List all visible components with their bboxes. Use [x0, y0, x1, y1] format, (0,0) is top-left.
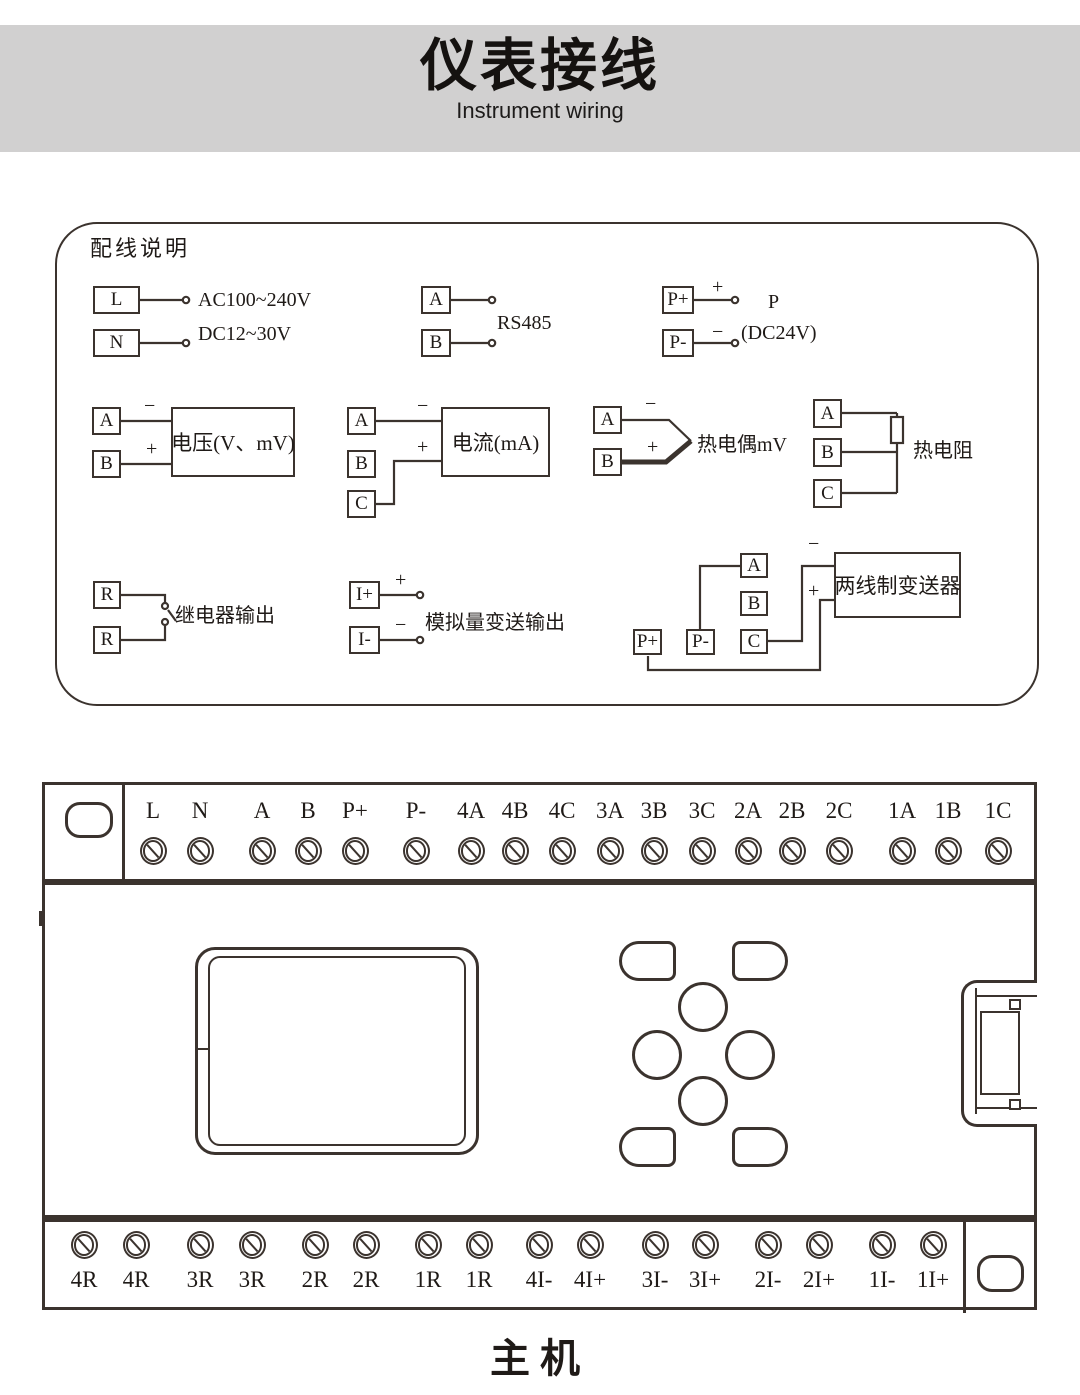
- terminal-top-2A: 2A: [725, 798, 771, 865]
- screw-icon: [755, 1231, 782, 1259]
- top-strip-divider-line: [45, 879, 1034, 885]
- terminal-top-4B: 4B: [492, 798, 538, 865]
- terminal-box-voltage-A: A: [92, 407, 121, 435]
- terminal-label: L: [130, 798, 176, 824]
- bottom-strip-divider-line: [45, 1215, 1034, 1222]
- terminal-bottom-1Iplus: 1I+: [908, 1231, 958, 1293]
- tc-minus-sign: −: [645, 393, 656, 416]
- terminal-top-4A: 4A: [448, 798, 494, 865]
- terminal-label: 1I+: [908, 1267, 958, 1293]
- screw-icon: [123, 1231, 150, 1259]
- screw-icon: [302, 1231, 329, 1259]
- mount-hole-bottom-right: [977, 1255, 1024, 1292]
- terminal-label: 4C: [539, 798, 585, 824]
- screw-icon: [295, 837, 322, 865]
- terminal-label: 3C: [679, 798, 725, 824]
- terminal-label: 2R: [341, 1267, 391, 1293]
- terminal-label: 4R: [111, 1267, 161, 1293]
- screw-icon: [466, 1231, 493, 1259]
- screw-icon: [140, 837, 167, 865]
- rtd-label: 热电阻: [913, 434, 973, 463]
- terminal-bottom-2Iminus: 2I-: [743, 1231, 793, 1293]
- terminal-bottom-4Iminus: 4I-: [514, 1231, 564, 1293]
- terminal-box-rtd-A: A: [813, 399, 842, 428]
- side-connector-line: [977, 995, 1037, 997]
- key-bottom-left: [619, 1127, 676, 1167]
- terminal-box-relay-R1: R: [93, 581, 121, 609]
- p24-desc: (DC24V): [741, 322, 817, 345]
- screw-icon: [692, 1231, 719, 1259]
- terminal-label: 4I+: [565, 1267, 615, 1293]
- terminal-box-Iminus: I-: [349, 626, 380, 654]
- terminal-box-tx-Pplus: P+: [633, 629, 662, 655]
- screw-icon: [239, 1231, 266, 1259]
- screw-icon: [187, 837, 214, 865]
- screw-icon: [597, 837, 624, 865]
- screw-icon: [403, 837, 430, 865]
- terminal-label: 1C: [975, 798, 1021, 824]
- power-spec-ac: AC100~240V: [198, 289, 311, 312]
- terminal-top-Pminus: P-: [393, 798, 439, 865]
- screw-icon: [689, 837, 716, 865]
- terminal-top-1B: 1B: [925, 798, 971, 865]
- terminal-box-rs485-B: B: [421, 329, 451, 357]
- terminal-box-tx-C: C: [740, 629, 768, 654]
- screw-icon: [641, 837, 668, 865]
- terminal-bottom-1Iminus: 1I-: [857, 1231, 907, 1293]
- tx-minus-sign: −: [808, 533, 819, 556]
- terminal-top-1A: 1A: [879, 798, 925, 865]
- screw-icon: [826, 837, 853, 865]
- terminal-top-1C: 1C: [975, 798, 1021, 865]
- rs485-label: RS485: [497, 312, 551, 335]
- terminal-bottom-3R-2: 3R: [227, 1231, 277, 1293]
- screw-icon: [577, 1231, 604, 1259]
- terminal-label: 1R: [403, 1267, 453, 1293]
- terminal-top-4C: 4C: [539, 798, 585, 865]
- terminal-top-2B: 2B: [769, 798, 815, 865]
- terminal-bottom-4R-2: 4R: [111, 1231, 161, 1293]
- screw-icon: [869, 1231, 896, 1259]
- terminal-bottom-3Iminus: 3I-: [630, 1231, 680, 1293]
- terminal-bottom-4Iplus: 4I+: [565, 1231, 615, 1293]
- terminal-label: 1I-: [857, 1267, 907, 1293]
- transmitter-box: 两线制变送器: [834, 552, 961, 618]
- terminal-box-Pminus: P-: [662, 329, 694, 357]
- terminal-box-current-A: A: [347, 407, 376, 435]
- terminal-top-3C: 3C: [679, 798, 725, 865]
- terminal-label: 3B: [631, 798, 677, 824]
- analog-out-label: 模拟量变送输出: [425, 606, 565, 635]
- screw-icon: [415, 1231, 442, 1259]
- terminal-box-L: L: [93, 286, 140, 314]
- terminal-bottom-2R-2: 2R: [341, 1231, 391, 1293]
- key-right: [725, 1030, 775, 1080]
- terminal-label: 4I-: [514, 1267, 564, 1293]
- screw-icon: [458, 837, 485, 865]
- current-minus-sign: −: [417, 395, 428, 418]
- main-unit-caption: 主机: [0, 1326, 1080, 1384]
- terminal-label: 2A: [725, 798, 771, 824]
- terminal-label: 4R: [59, 1267, 109, 1293]
- wiring-panel-title: 配线说明: [90, 231, 190, 263]
- terminal-label: 2I-: [743, 1267, 793, 1293]
- side-connector-pin: [1009, 999, 1021, 1010]
- terminal-top-B: B: [285, 798, 331, 865]
- terminal-label: 1A: [879, 798, 925, 824]
- current-plus-sign: +: [417, 436, 428, 459]
- side-connector-slot: [980, 1011, 1020, 1095]
- terminal-label: 3R: [227, 1267, 277, 1293]
- screw-icon: [779, 837, 806, 865]
- terminal-box-Iplus: I+: [349, 581, 380, 609]
- terminal-label: 4A: [448, 798, 494, 824]
- terminal-top-3B: 3B: [631, 798, 677, 865]
- side-connector-pin: [1009, 1099, 1021, 1110]
- terminal-bottom-1R-1: 1R: [403, 1231, 453, 1293]
- terminal-label: N: [177, 798, 223, 824]
- terminal-label: 2C: [816, 798, 862, 824]
- terminal-box-current-C: C: [347, 490, 376, 518]
- voltage-input-box: 电压(V、mV): [171, 407, 295, 477]
- thermocouple-label: 热电偶mV: [697, 428, 787, 457]
- terminal-label: A: [239, 798, 285, 824]
- terminal-box-tc-B: B: [593, 448, 622, 476]
- terminal-box-relay-R2: R: [93, 626, 121, 654]
- terminal-label: P+: [332, 798, 378, 824]
- terminal-top-L: L: [130, 798, 176, 865]
- terminal-box-rtd-C: C: [813, 479, 842, 508]
- screw-icon: [549, 837, 576, 865]
- screw-icon: [985, 837, 1012, 865]
- terminal-box-tx-A: A: [740, 553, 768, 578]
- terminal-box-rtd-B: B: [813, 438, 842, 467]
- terminal-label: B: [285, 798, 331, 824]
- terminal-label: 4B: [492, 798, 538, 824]
- terminal-bottom-1R-2: 1R: [454, 1231, 504, 1293]
- relay-label: 继电器输出: [175, 599, 275, 628]
- bottom-strip-right-divider: [963, 1222, 966, 1313]
- top-strip-left-divider: [122, 785, 125, 879]
- screw-icon: [187, 1231, 214, 1259]
- screw-icon: [342, 837, 369, 865]
- terminal-top-3A: 3A: [587, 798, 633, 865]
- display-bezel-notch: [195, 1048, 208, 1050]
- terminal-label: 2B: [769, 798, 815, 824]
- terminal-box-Pplus: P+: [662, 286, 694, 314]
- tc-plus-sign: +: [647, 436, 658, 459]
- screw-icon: [526, 1231, 553, 1259]
- terminal-box-tx-B: B: [740, 591, 768, 616]
- terminal-top-A: A: [239, 798, 285, 865]
- current-input-box: 电流(mA): [441, 407, 550, 477]
- terminal-label: 3I-: [630, 1267, 680, 1293]
- key-top-right: [732, 941, 788, 981]
- terminal-bottom-3Iplus: 3I+: [680, 1231, 730, 1293]
- screw-icon: [889, 837, 916, 865]
- terminal-label: 1B: [925, 798, 971, 824]
- terminal-label: 3A: [587, 798, 633, 824]
- p24-minus-sign: −: [712, 321, 723, 344]
- analog-plus-sign: +: [395, 569, 406, 592]
- analog-minus-sign: −: [395, 614, 406, 637]
- terminal-box-current-B: B: [347, 450, 376, 478]
- terminal-box-tx-Pminus: P-: [686, 629, 715, 655]
- page-title: 仪表接线: [0, 37, 1080, 97]
- voltage-minus-sign: −: [144, 395, 155, 418]
- terminal-top-2C: 2C: [816, 798, 862, 865]
- key-up: [678, 982, 728, 1032]
- screw-icon: [806, 1231, 833, 1259]
- screw-icon: [920, 1231, 947, 1259]
- screw-icon: [502, 837, 529, 865]
- terminal-label: 2R: [290, 1267, 340, 1293]
- terminal-bottom-3R-1: 3R: [175, 1231, 225, 1293]
- terminal-box-N: N: [93, 329, 140, 357]
- p24-name: P: [768, 291, 779, 314]
- screw-icon: [249, 837, 276, 865]
- terminal-bottom-4R-1: 4R: [59, 1231, 109, 1293]
- page-subtitle: Instrument wiring: [0, 98, 1080, 124]
- case-notch: [39, 911, 42, 926]
- side-connector-line: [977, 1107, 1037, 1109]
- terminal-label: 2I+: [794, 1267, 844, 1293]
- screw-icon: [642, 1231, 669, 1259]
- terminal-label: 3I+: [680, 1267, 730, 1293]
- screw-icon: [735, 837, 762, 865]
- key-down: [678, 1076, 728, 1126]
- display-screen: [208, 956, 466, 1146]
- screw-icon: [935, 837, 962, 865]
- key-left: [632, 1030, 682, 1080]
- terminal-box-tc-A: A: [593, 406, 622, 434]
- p24-plus-sign: +: [712, 276, 723, 299]
- screw-icon: [353, 1231, 380, 1259]
- terminal-label: P-: [393, 798, 439, 824]
- tx-plus-sign: +: [808, 580, 819, 603]
- header-band: 仪表接线 Instrument wiring: [0, 25, 1080, 152]
- terminal-box-voltage-B: B: [92, 450, 121, 478]
- terminal-top-N: N: [177, 798, 223, 865]
- main-unit: L N A B P+ P- 4A 4B 4C 3A 3B 3C 2A 2B 2C…: [42, 782, 1037, 1310]
- terminal-label: 3R: [175, 1267, 225, 1293]
- key-top-left: [619, 941, 676, 981]
- terminal-top-Pplus: P+: [332, 798, 378, 865]
- key-bottom-right: [732, 1127, 788, 1167]
- side-connector-line: [975, 988, 977, 1114]
- power-spec-dc: DC12~30V: [198, 323, 291, 346]
- terminal-bottom-2Iplus: 2I+: [794, 1231, 844, 1293]
- voltage-plus-sign: +: [146, 438, 157, 461]
- screw-icon: [71, 1231, 98, 1259]
- terminal-box-rs485-A: A: [421, 286, 451, 314]
- terminal-label: 1R: [454, 1267, 504, 1293]
- terminal-bottom-2R-1: 2R: [290, 1231, 340, 1293]
- mount-hole-top-left: [65, 802, 113, 838]
